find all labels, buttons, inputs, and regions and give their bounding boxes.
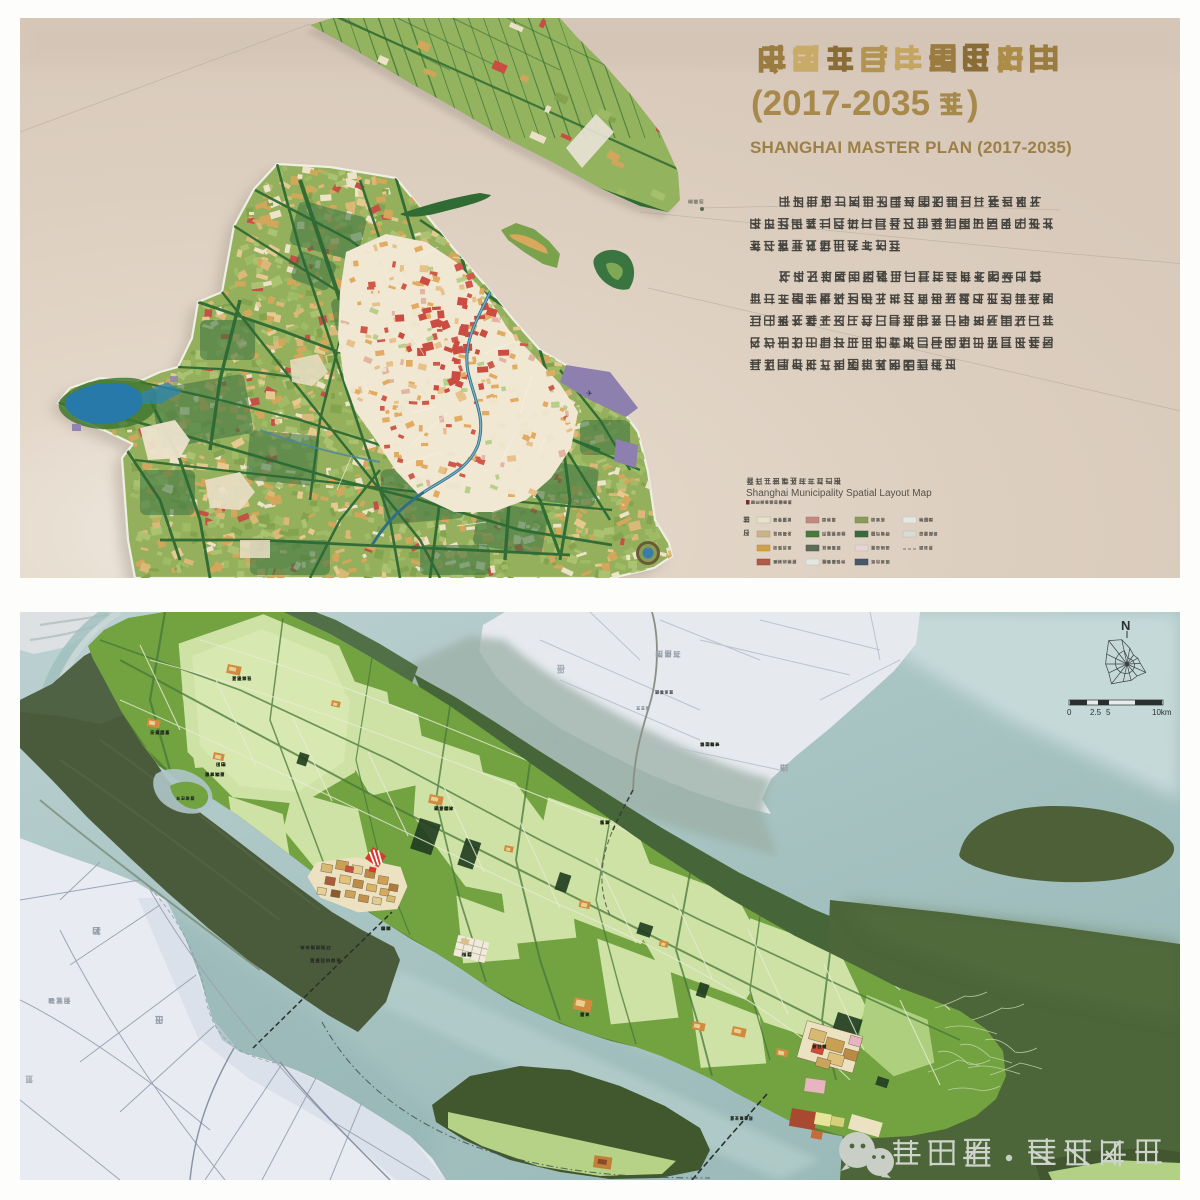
svg-text:0: 0	[1067, 708, 1072, 717]
svg-text:10km: 10km	[1152, 708, 1172, 717]
svg-text:): )	[967, 84, 979, 123]
svg-text:Shanghai Municipality Spatial: Shanghai Municipality Spatial Layout Map	[746, 488, 932, 499]
svg-text:N: N	[1121, 618, 1130, 633]
svg-text:(2017-2035: (2017-2035	[751, 84, 930, 123]
svg-text:2.5: 2.5	[1090, 708, 1102, 717]
svg-text:SHANGHAI MASTER PLAN (2017-203: SHANGHAI MASTER PLAN (2017-2035)	[750, 138, 1072, 157]
svg-text:✈: ✈	[586, 389, 593, 398]
svg-text:5: 5	[1106, 708, 1111, 717]
